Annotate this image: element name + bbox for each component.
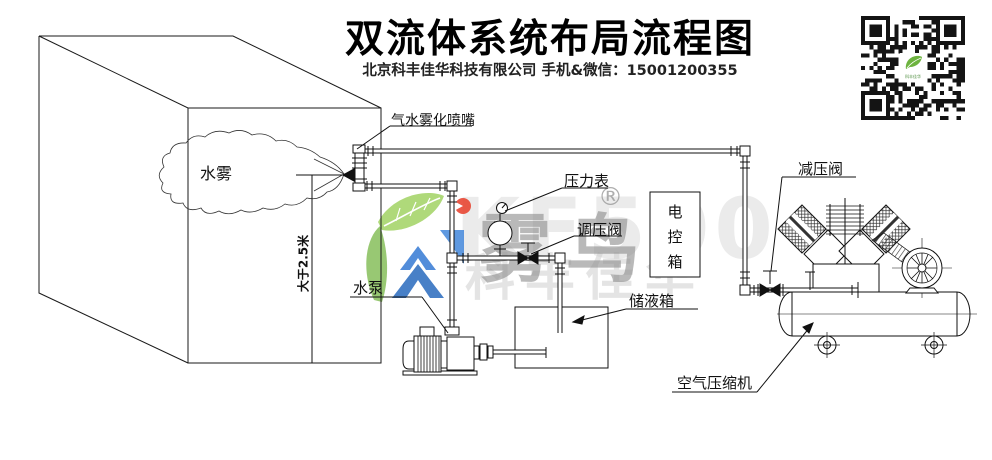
label-water-pump: 水泵 xyxy=(353,277,383,298)
flow-diagram xyxy=(0,0,992,460)
air-compressor-drawing xyxy=(777,198,977,358)
label-pressure-gauge: 压力表 xyxy=(564,170,609,191)
wechat-qr-code: 科丰佳华 xyxy=(857,14,969,122)
gauge-leader xyxy=(505,188,608,211)
nozzle-assembly xyxy=(343,145,367,191)
regulating-valve-symbol xyxy=(518,243,538,264)
label-height-dimension: 大于2.5米 xyxy=(295,228,312,300)
qr-leaf-icon xyxy=(900,53,926,71)
mist-cloud xyxy=(159,130,344,213)
damper-body xyxy=(488,221,512,245)
label-nozzle: 气水雾化喷嘴 xyxy=(391,110,475,130)
qr-center-logo: 科丰佳华 xyxy=(900,53,926,81)
label-regulating-valve: 调压阀 xyxy=(577,219,622,240)
label-liquid-tank: 储液箱 xyxy=(629,290,674,311)
label-control-box: 电 控 箱 xyxy=(652,200,698,275)
compressor-leader-arrow xyxy=(803,323,813,333)
label-air-compressor: 空气压缩机 xyxy=(677,372,752,393)
nozzle-tip xyxy=(343,169,354,181)
room-box xyxy=(39,36,381,363)
label-reducing-valve: 减压阀 xyxy=(798,158,843,179)
water-pump-drawing xyxy=(403,327,493,375)
pressure-gauge-assembly xyxy=(488,203,512,257)
label-mist: 水雾 xyxy=(200,160,232,184)
